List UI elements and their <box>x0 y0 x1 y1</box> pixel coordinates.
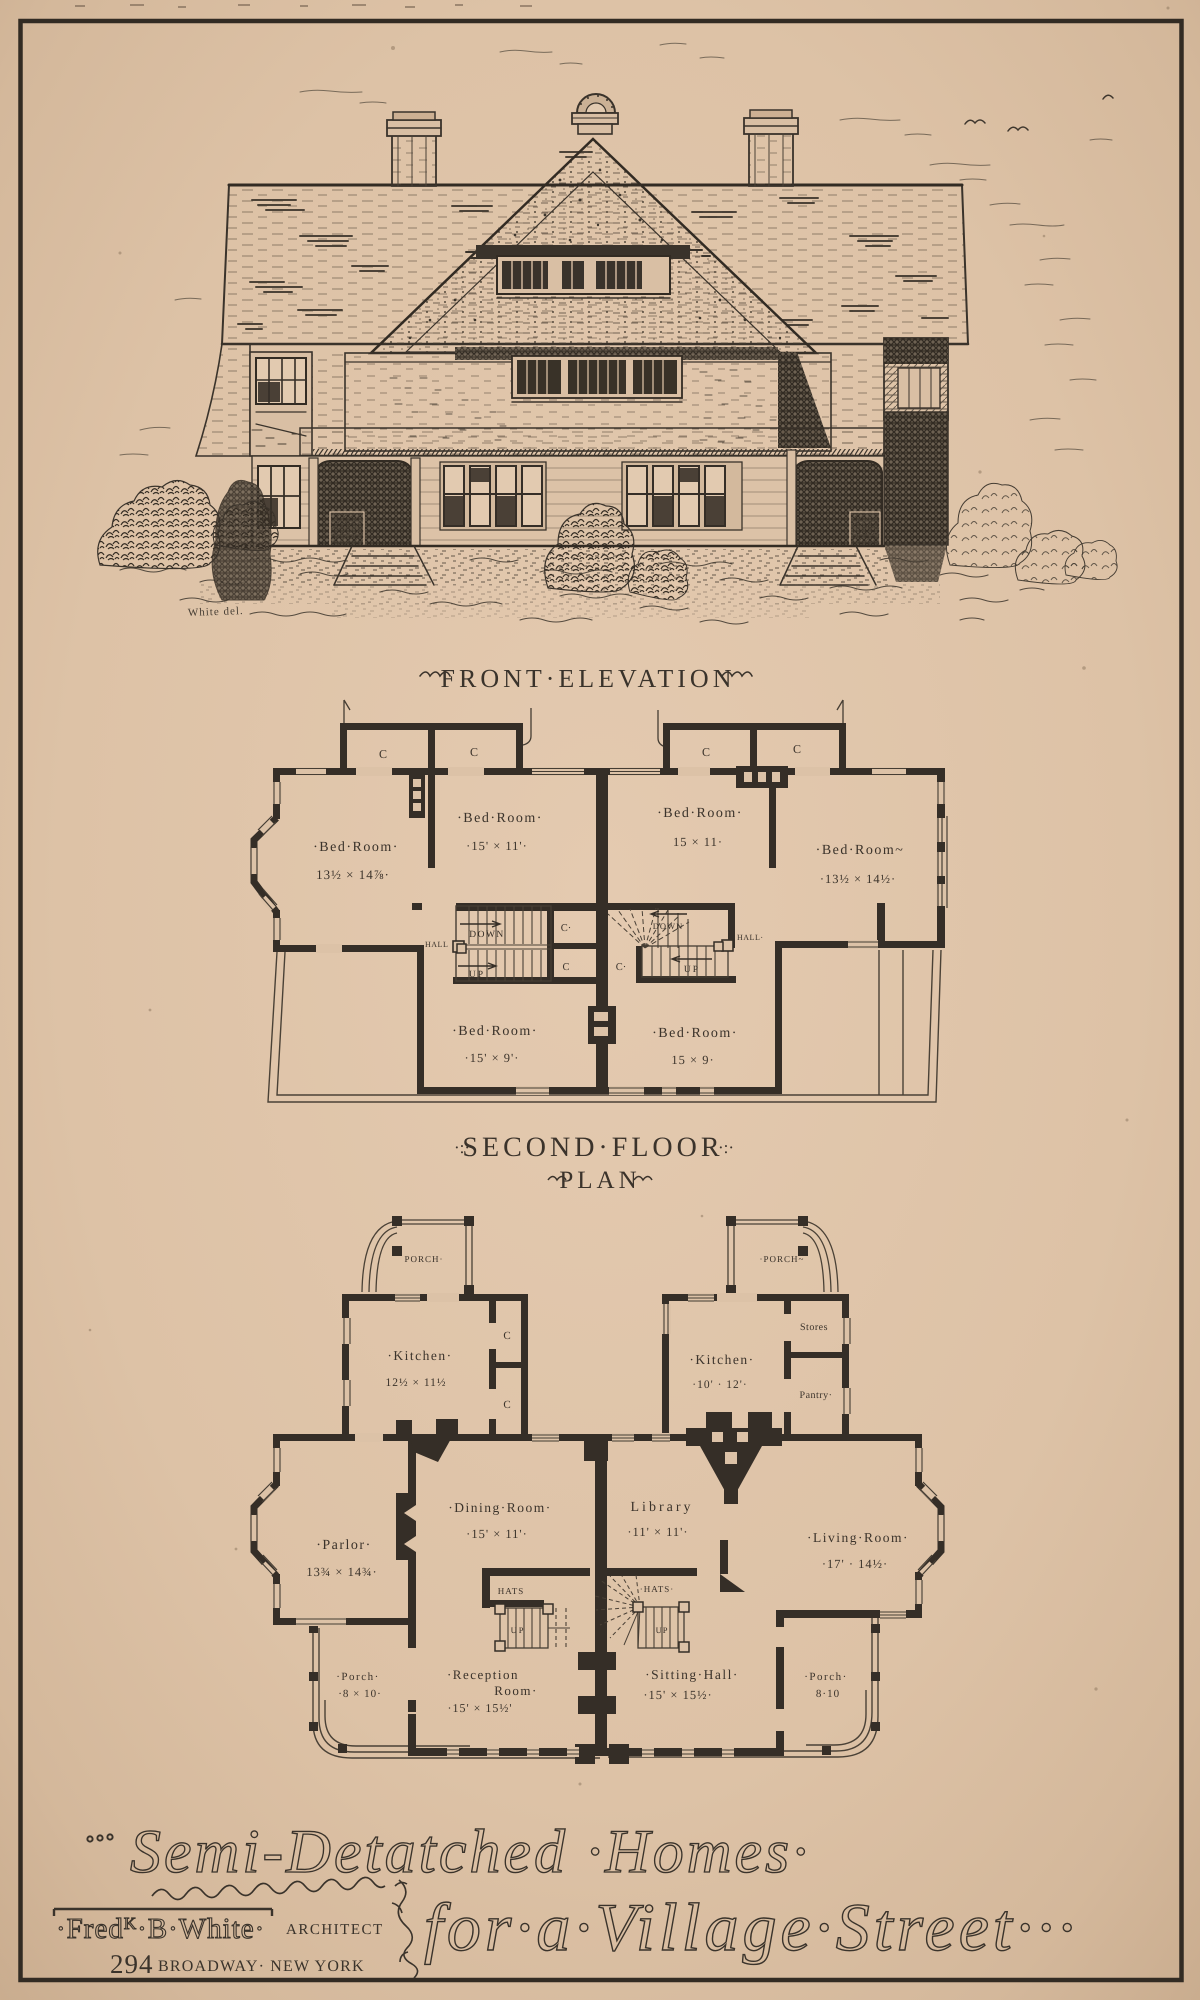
svg-text:ARCHITECT: ARCHITECT <box>286 1922 384 1938</box>
svg-text:·:·: ·:· <box>718 1138 734 1157</box>
svg-text:·Porch·: ·Porch· <box>336 1671 380 1683</box>
svg-text:·10' · 12'·: ·10' · 12'· <box>692 1379 747 1391</box>
svg-text:13¾ × 14¾·: 13¾ × 14¾· <box>306 1565 377 1579</box>
svg-text:·15' × 11'·: ·15' × 11'· <box>466 1527 528 1541</box>
svg-text:PLAN: PLAN <box>559 1167 640 1194</box>
svg-text:HATS: HATS <box>498 1586 525 1596</box>
svg-text:HALL: HALL <box>425 940 448 949</box>
svg-text:·:·: ·:· <box>454 1138 470 1157</box>
svg-text:·Parlor·: ·Parlor· <box>316 1538 372 1553</box>
svg-text:·Reception: ·Reception <box>447 1667 519 1682</box>
svg-text:294: 294 <box>110 1949 154 1979</box>
svg-text:C: C <box>470 745 478 759</box>
svg-text:·Bed·Room·: ·Bed·Room· <box>457 811 543 826</box>
svg-text:SECOND·FLOOR: SECOND·FLOOR <box>462 1132 723 1163</box>
svg-text:BROADWAY· NEW YORK: BROADWAY· NEW YORK <box>158 1958 365 1975</box>
svg-text:DOWN: DOWN <box>469 930 505 940</box>
svg-text:UP: UP <box>656 1625 669 1635</box>
svg-text:15 × 11·: 15 × 11· <box>673 835 723 849</box>
svg-text:C: C <box>503 1330 510 1342</box>
svg-text:·Kitchen·: ·Kitchen· <box>387 1348 452 1363</box>
svg-text:·Bed·Room·: ·Bed·Room· <box>657 806 743 821</box>
svg-text:PORCH·: PORCH· <box>404 1254 443 1264</box>
svg-text:·Sitting·Hall·: ·Sitting·Hall· <box>645 1667 739 1682</box>
svg-text:C: C <box>503 1399 510 1411</box>
svg-text:UP: UP <box>684 965 700 975</box>
svg-text:·PORCH~: ·PORCH~ <box>760 1254 805 1264</box>
svg-text:15 × 9·: 15 × 9· <box>671 1053 714 1067</box>
svg-text:HALL·: HALL· <box>737 933 764 942</box>
svg-text:·13½ × 14½·: ·13½ × 14½· <box>820 872 896 886</box>
svg-text:Stores: Stores <box>800 1322 828 1333</box>
svg-text:C·: C· <box>561 923 572 934</box>
svg-text:·Living·Room·: ·Living·Room· <box>807 1530 909 1545</box>
svg-text:FRONT·ELEVATION: FRONT·ELEVATION <box>441 664 736 693</box>
svg-text:Library: Library <box>631 1500 694 1515</box>
svg-text:·HATS·: ·HATS· <box>640 1584 675 1594</box>
svg-text:C: C <box>702 745 710 759</box>
svg-text:·Bed·Room~: ·Bed·Room~ <box>816 843 905 858</box>
svg-text:Room·: Room· <box>494 1683 538 1698</box>
svg-text:·Bed·Room·: ·Bed·Room· <box>652 1026 738 1041</box>
svg-text:C: C <box>562 962 569 973</box>
svg-text:C: C <box>793 742 801 756</box>
svg-text:13½ × 14⅞·: 13½ × 14⅞· <box>316 867 390 882</box>
svg-text:·Porch·: ·Porch· <box>804 1671 848 1683</box>
svg-text:C: C <box>379 747 387 761</box>
svg-text:·8 × 10·: ·8 × 10· <box>338 1688 382 1700</box>
svg-text:UP: UP <box>511 1625 526 1635</box>
svg-text:C·: C· <box>616 962 627 973</box>
svg-text:for·a·Village·Street···: for·a·Village·Street··· <box>424 1889 1079 1965</box>
svg-text:·15' × 15½': ·15' × 15½' <box>447 1701 512 1715</box>
svg-text:8·10: 8·10 <box>816 1688 840 1700</box>
svg-text:White del.: White del. <box>188 605 244 619</box>
svg-text:Semi‐Detatched ·Homes·: Semi‐Detatched ·Homes· <box>130 1818 811 1886</box>
svg-text:·15' × 15½·: ·15' × 15½· <box>643 1688 712 1702</box>
svg-text:UP: UP <box>469 970 485 980</box>
svg-text:·Kitchen·: ·Kitchen· <box>689 1352 754 1367</box>
svg-text:·Bed·Room·: ·Bed·Room· <box>452 1024 538 1039</box>
svg-text:·Dining·Room·: ·Dining·Room· <box>448 1500 552 1515</box>
svg-text:·Bed·Room·: ·Bed·Room· <box>313 840 399 855</box>
svg-text:·17' · 14½·: ·17' · 14½· <box>822 1557 888 1571</box>
svg-text:·15' × 9'·: ·15' × 9'· <box>465 1051 520 1065</box>
svg-text:12½ × 11½: 12½ × 11½ <box>385 1377 446 1389</box>
svg-text:Pantry·: Pantry· <box>800 1390 833 1401</box>
svg-text:·11' × 11'·: ·11' × 11'· <box>627 1525 688 1539</box>
svg-text:DOWN: DOWN <box>653 921 683 931</box>
svg-text:·FredK·B·White·: ·FredK·B·White· <box>56 1913 265 1945</box>
svg-text:·15' × 11'·: ·15' × 11'· <box>466 839 528 853</box>
